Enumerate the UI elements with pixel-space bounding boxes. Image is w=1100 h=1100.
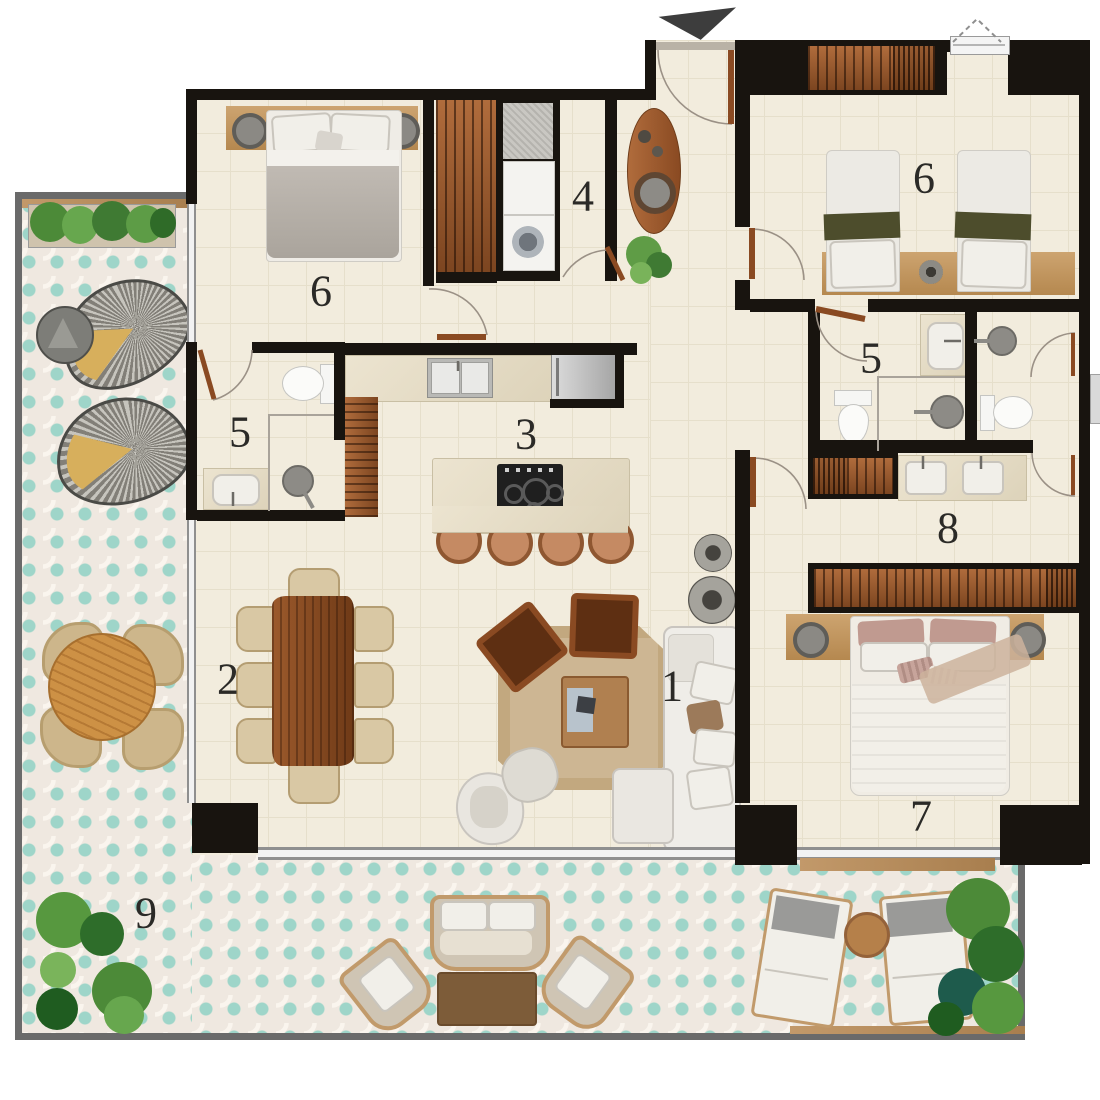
dining-chair [236, 662, 276, 708]
sink [212, 474, 260, 506]
wall [1079, 40, 1090, 864]
outdoor-sofa-cushion [440, 901, 488, 931]
wall [605, 95, 617, 281]
twin-bed-pillow [829, 239, 897, 289]
column [735, 805, 797, 865]
room-label-bath-left: 5 [229, 407, 251, 458]
nightstand-decor [919, 260, 943, 284]
window-sill-line [953, 44, 1005, 46]
wall [423, 89, 434, 286]
planter-plants [150, 208, 176, 238]
bedside-lamp [793, 622, 829, 658]
outdoor-sofa-seat [440, 931, 532, 955]
wall [808, 440, 1033, 453]
outdoor-sofa-cushion [488, 901, 536, 931]
lounger-divider [765, 968, 829, 980]
room-label-bedroom-right: 6 [913, 153, 935, 204]
dining-chair [288, 762, 340, 804]
monstera-plant [928, 1002, 964, 1036]
plant [40, 952, 76, 988]
kitchen-sink-basin [431, 362, 460, 394]
dining-chair [354, 662, 394, 708]
sink [962, 461, 1004, 495]
lounger-headrest [771, 895, 840, 939]
sliding-door [187, 204, 196, 342]
kitchen-sink-basin [461, 362, 489, 394]
laundry-counter [503, 103, 553, 159]
plant [80, 912, 124, 956]
sofa-pillow [692, 728, 738, 768]
coffee-table-decor [576, 696, 596, 714]
twin-bed-pillow [960, 239, 1028, 289]
wall [334, 355, 345, 440]
toilet-bowl [282, 366, 324, 401]
column [1000, 805, 1082, 865]
window-tab [1090, 374, 1100, 424]
cooktop-burner [546, 484, 564, 502]
cooktop-burner [504, 484, 524, 504]
room-label-bath-right: 5 [860, 333, 882, 384]
column [192, 803, 258, 853]
wall [436, 272, 497, 283]
room-label-master: 7 [910, 791, 932, 842]
wall [550, 399, 624, 408]
patio-table [48, 633, 156, 741]
wall [750, 299, 815, 312]
sofa-pillow [685, 765, 734, 811]
room-label-laundry: 4 [572, 171, 594, 222]
wall [735, 280, 750, 310]
wall [965, 312, 977, 452]
wardrobe-grille [893, 46, 935, 90]
wall [186, 342, 197, 520]
swivel-chair-seat [470, 786, 508, 828]
kitchen-island-edge [432, 506, 628, 533]
wall [1008, 40, 1090, 95]
wall [735, 450, 750, 803]
fridge-handle [556, 358, 559, 396]
plant [36, 988, 78, 1030]
wardrobe [808, 46, 893, 90]
cooktop-knobs [505, 468, 555, 472]
outdoor-coffee-table [437, 972, 537, 1026]
fridge [551, 354, 617, 402]
room-label-terrace: 9 [135, 888, 157, 939]
terrace-edge-bottom [15, 1033, 1025, 1040]
dining-chair [354, 718, 394, 764]
monstera-plant [972, 982, 1024, 1034]
wardrobe [436, 100, 496, 272]
wall [868, 299, 1083, 312]
floor-plan: 1 2 3 4 5 5 6 6 7 8 9 [0, 0, 1100, 1100]
washer [503, 161, 555, 215]
dining-chair [236, 606, 276, 652]
lounger-headrest [886, 898, 953, 937]
wardrobe-grille [1046, 569, 1076, 607]
wall [735, 95, 750, 227]
bed-sheet-fold [267, 150, 399, 166]
dryer-door [512, 226, 544, 258]
accent-armchair [569, 593, 639, 659]
plant [104, 996, 144, 1034]
closet-grille [813, 458, 847, 494]
wall [197, 510, 345, 521]
closet-slats [847, 458, 893, 494]
sliding-door [187, 520, 196, 803]
wall [186, 89, 197, 204]
bed-duvet [267, 150, 399, 258]
wall [808, 312, 820, 453]
console-decor-bowl [638, 130, 651, 143]
wardrobe [814, 569, 1046, 607]
dining-chair [236, 718, 276, 764]
sliding-door [258, 847, 735, 860]
decor-bowl [688, 576, 736, 624]
bedside-lamp [232, 113, 268, 149]
sofa-chaise [612, 768, 674, 844]
decor-bowl [694, 534, 732, 572]
room-label-dining: 2 [217, 654, 239, 705]
dining-chair [354, 606, 394, 652]
twin-bed-runner [824, 212, 901, 241]
door-sill [800, 858, 995, 871]
console-decor-bowl [652, 146, 663, 157]
toilet-bowl [993, 396, 1033, 429]
room-label-kitchen: 3 [515, 409, 537, 460]
room-label-living: 1 [661, 661, 683, 712]
twin-bed-runner [955, 212, 1032, 241]
terrace-edge-top [15, 192, 192, 199]
sink [905, 461, 947, 495]
plant [630, 262, 652, 284]
console-decor-bowl [634, 172, 676, 214]
sink [927, 322, 964, 370]
wall [334, 343, 637, 355]
terrace-edge-left [15, 192, 22, 1040]
wall [645, 40, 656, 100]
wall [252, 342, 345, 353]
console-table [627, 108, 681, 234]
room-label-dressing: 8 [937, 503, 959, 554]
dining-table [272, 596, 354, 766]
room-label-bedroom-left: 6 [310, 266, 332, 317]
round-side-table [844, 912, 890, 958]
tall-cabinet [345, 397, 378, 517]
wall [186, 89, 656, 100]
